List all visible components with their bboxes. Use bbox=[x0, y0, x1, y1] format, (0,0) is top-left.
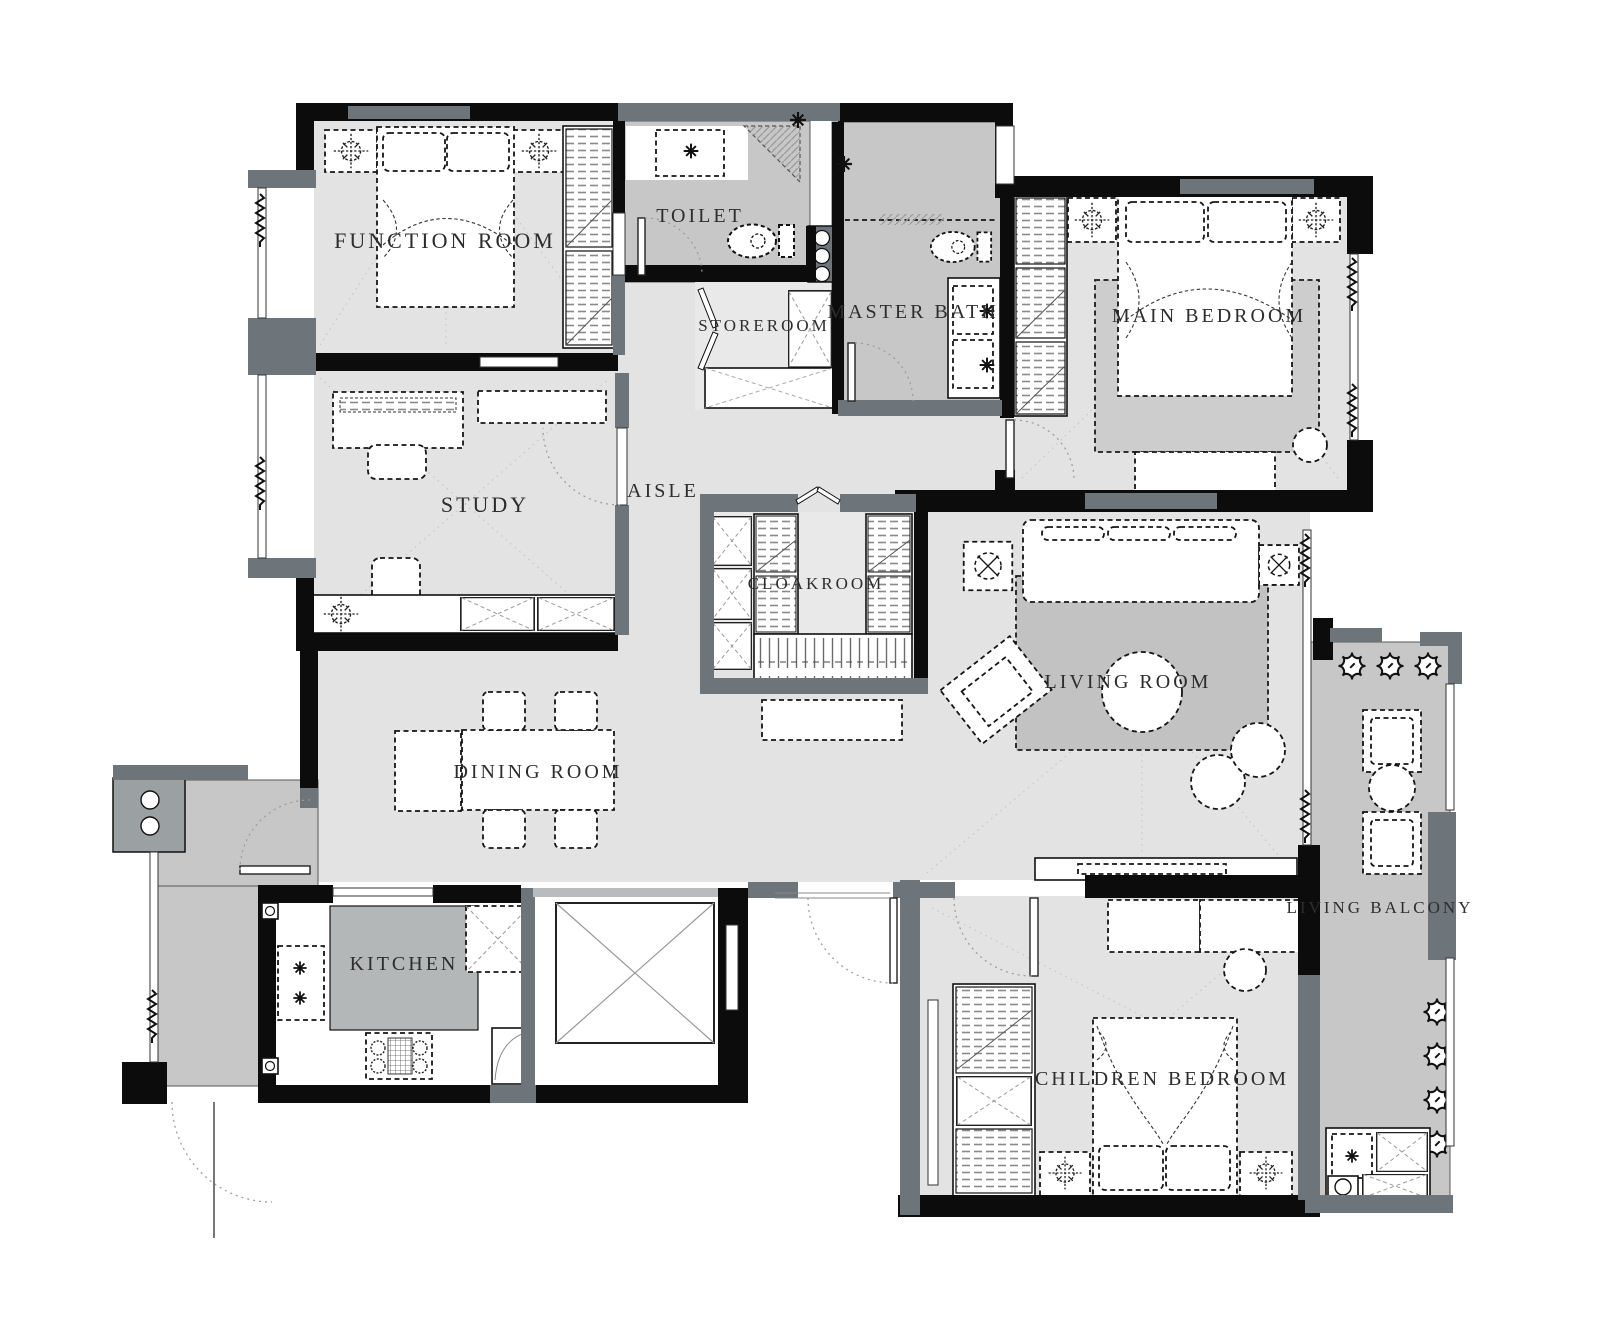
sofa-cushion bbox=[1108, 527, 1170, 540]
stool bbox=[1293, 428, 1327, 462]
wall-segment bbox=[898, 1195, 1320, 1217]
wall-segment bbox=[521, 888, 535, 1100]
wardrobe-shelves bbox=[956, 1129, 1032, 1193]
label-dining-room: DINING ROOM bbox=[453, 761, 622, 783]
window-pier bbox=[248, 170, 316, 188]
wardrobe-shelves bbox=[956, 987, 1032, 1073]
window-pier bbox=[300, 788, 318, 808]
label-living-room: LIVING ROOM bbox=[1045, 671, 1212, 693]
shelf-circle bbox=[815, 249, 830, 264]
wardrobe-x-cell bbox=[712, 569, 751, 620]
wall-segment bbox=[700, 494, 798, 512]
sofa-cushion bbox=[1174, 527, 1236, 540]
kitchen-sink bbox=[278, 946, 324, 1020]
wall-segment bbox=[1347, 176, 1373, 254]
pillow bbox=[1208, 202, 1286, 242]
label-living-balcony: LIVING BALCONY bbox=[1287, 898, 1474, 917]
pillow bbox=[1166, 1146, 1230, 1190]
floor-plan-canvas: Residential Apartment Floor Plan bbox=[0, 0, 1600, 1325]
planter-inner bbox=[1371, 820, 1413, 866]
wall-segment bbox=[1085, 493, 1217, 509]
pocket-door bbox=[480, 357, 558, 367]
wall-segment bbox=[615, 505, 629, 635]
door-leaf bbox=[848, 343, 855, 401]
wall-segment bbox=[433, 885, 521, 903]
wall-segment bbox=[533, 888, 718, 897]
wall-segment bbox=[1305, 1195, 1453, 1213]
wall-segment bbox=[1298, 975, 1320, 1200]
hob-grate bbox=[388, 1038, 412, 1074]
window bbox=[1446, 684, 1454, 810]
cabinet bbox=[478, 391, 606, 423]
cabinet-x-cell bbox=[538, 597, 614, 630]
pivot-dot bbox=[266, 1062, 275, 1071]
pillow bbox=[1099, 1146, 1163, 1190]
bench bbox=[1135, 452, 1275, 492]
label-storeroom: STOREROOM bbox=[698, 316, 830, 335]
label-children-bedroom: CHILDREN BEDROOM bbox=[1035, 1068, 1289, 1090]
elevator-shaft bbox=[556, 903, 714, 1043]
label-function-room: FUNCTION ROOM bbox=[334, 228, 556, 253]
window-pier bbox=[248, 558, 316, 578]
floor-kitchen-balcony bbox=[150, 886, 260, 1086]
label-master-bath: MASTER BATH bbox=[827, 301, 998, 323]
wall-segment bbox=[838, 103, 1013, 122]
wardrobe-shelves bbox=[868, 516, 910, 572]
wall-segment bbox=[618, 265, 810, 282]
wall-segment bbox=[348, 106, 470, 119]
door-arc bbox=[808, 898, 893, 983]
balcony-table bbox=[1369, 765, 1415, 811]
toilet-icon bbox=[931, 232, 991, 262]
door-leaf bbox=[638, 218, 645, 275]
chair bbox=[483, 692, 525, 730]
wardrobe-shelves bbox=[756, 516, 796, 572]
sliding-panel bbox=[928, 1000, 938, 1185]
pivot-dot bbox=[266, 907, 275, 916]
wall-segment bbox=[490, 1085, 536, 1103]
plant-icon bbox=[1339, 653, 1366, 680]
door-arc bbox=[172, 1102, 272, 1202]
label-cloakroom: CLOAKROOM bbox=[748, 574, 885, 593]
planter-inner bbox=[1371, 718, 1413, 764]
chair bbox=[555, 810, 597, 848]
wall-segment bbox=[308, 353, 618, 371]
window-pier bbox=[1428, 812, 1456, 960]
wall-segment bbox=[893, 882, 955, 898]
cabinet-x-cell bbox=[461, 597, 535, 630]
wall-segment bbox=[840, 494, 916, 512]
wall-segment bbox=[533, 1085, 748, 1103]
window-pier bbox=[248, 318, 316, 375]
toilet-icon bbox=[728, 225, 794, 258]
wall-segment bbox=[914, 512, 928, 680]
wall-segment bbox=[113, 765, 248, 780]
door-leaf bbox=[890, 898, 897, 983]
window bbox=[258, 375, 266, 558]
wall-segment bbox=[1448, 632, 1462, 684]
floor-plan-page: Residential Apartment Floor Plan bbox=[0, 0, 1600, 1325]
shower-screen-hatch bbox=[880, 214, 944, 225]
washer-drum bbox=[1335, 1179, 1351, 1195]
shoe-cabinet bbox=[762, 700, 902, 740]
window bbox=[1446, 958, 1454, 1146]
wall-segment bbox=[296, 633, 618, 651]
wall-segment bbox=[1330, 628, 1382, 642]
pillow bbox=[383, 133, 445, 171]
wall-segment bbox=[618, 103, 840, 121]
stool bbox=[1224, 949, 1266, 991]
plant-icon bbox=[1415, 653, 1442, 680]
door-leaf bbox=[1006, 420, 1014, 478]
closet-shelves bbox=[1016, 342, 1065, 414]
shelf-circle bbox=[815, 231, 830, 246]
tv bbox=[1078, 864, 1226, 874]
room-kitchen-balcony bbox=[113, 778, 185, 852]
pillow bbox=[447, 133, 509, 171]
desk bbox=[1108, 900, 1200, 952]
plant-icon bbox=[1377, 653, 1404, 680]
wall-segment bbox=[806, 226, 816, 282]
label-main-bedroom: MAIN BEDROOM bbox=[1112, 305, 1306, 327]
cabinet-x-cell bbox=[1377, 1132, 1428, 1171]
wall-segment bbox=[300, 648, 318, 790]
wall-segment bbox=[258, 1085, 493, 1103]
chair bbox=[555, 692, 597, 730]
wardrobe-x-cell bbox=[957, 1077, 1031, 1126]
door-leaf bbox=[240, 866, 310, 874]
wardrobe-x-cell bbox=[712, 622, 751, 669]
wall-segment bbox=[1180, 179, 1314, 194]
wall-segment bbox=[1085, 875, 1318, 898]
closet-shelves bbox=[1016, 198, 1065, 264]
pouf bbox=[1231, 723, 1285, 777]
cabinet-x-cell bbox=[1363, 1174, 1428, 1198]
chair bbox=[368, 445, 426, 479]
door-slot bbox=[613, 213, 625, 275]
label-kitchen: KITCHEN bbox=[350, 953, 459, 975]
sofa-cushion bbox=[1042, 527, 1104, 540]
door-slot bbox=[726, 925, 738, 1010]
window bbox=[333, 888, 433, 896]
wardrobe-shelves bbox=[566, 251, 612, 345]
pillow bbox=[1126, 202, 1204, 242]
wall-segment bbox=[613, 121, 625, 213]
door-slot bbox=[617, 428, 627, 505]
wall-segment bbox=[838, 400, 1002, 416]
window bbox=[996, 126, 1014, 184]
balcony-counter bbox=[113, 778, 185, 852]
label-study: STUDY bbox=[441, 492, 529, 517]
sink-bowl bbox=[141, 817, 159, 835]
label-toilet: TOILET bbox=[656, 205, 744, 227]
wall-segment bbox=[122, 1062, 167, 1104]
shelf-circle bbox=[815, 267, 830, 282]
desk-equipment bbox=[340, 398, 456, 412]
wall-segment bbox=[615, 373, 629, 428]
label-aisle: AISLE bbox=[627, 480, 699, 502]
sink-bowl bbox=[141, 791, 159, 809]
side-table-icon bbox=[1259, 545, 1299, 585]
room-kitchen bbox=[278, 906, 532, 1084]
chair bbox=[483, 810, 525, 848]
wall-segment bbox=[700, 494, 714, 694]
wall-segment bbox=[700, 678, 928, 694]
closet-shelves bbox=[1016, 268, 1065, 338]
wall-segment bbox=[748, 882, 798, 898]
wall-segment bbox=[900, 880, 920, 1215]
laundry-corner bbox=[1326, 1128, 1430, 1198]
wardrobe-shelves bbox=[566, 129, 612, 247]
door-leaf bbox=[1030, 898, 1038, 976]
wardrobe-x-cell bbox=[712, 517, 751, 566]
side-table-icon bbox=[964, 542, 1013, 591]
wall-segment bbox=[1000, 198, 1014, 418]
wall-segment bbox=[613, 275, 625, 355]
sideboard bbox=[395, 731, 461, 811]
